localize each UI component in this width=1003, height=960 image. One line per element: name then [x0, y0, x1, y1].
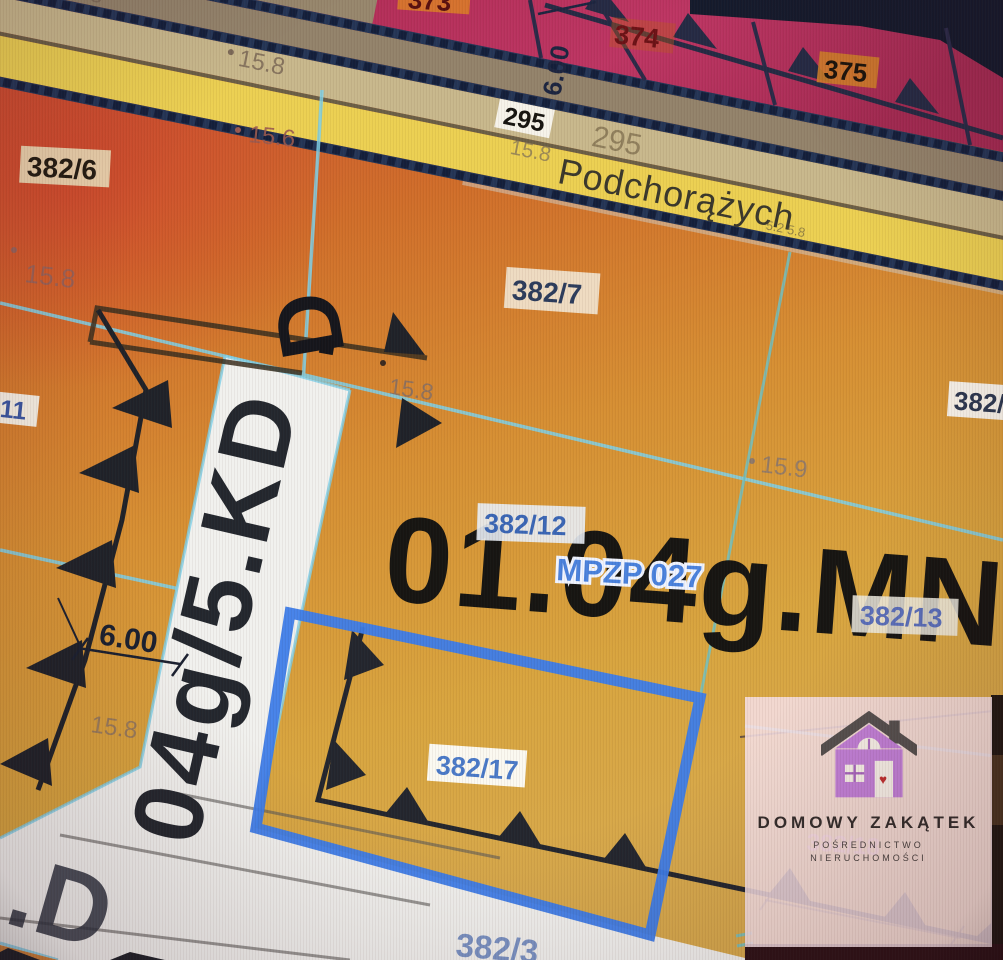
parcel-374-label: 374	[613, 19, 661, 54]
parcel-382-right-edge[interactable]: 382/	[947, 381, 1003, 420]
survey-square-marker	[319, 339, 335, 355]
parcel-374[interactable]: 374	[609, 17, 676, 56]
parcel-382-6-label: 382/6	[26, 151, 98, 186]
watermark-panel: ♥ DOMOWY ZAKĄTEK POŚREDNICTWO NIERUCHOMO…	[745, 697, 992, 947]
parcel-382-7[interactable]: 382/7	[504, 267, 601, 314]
parcel-382-17-label: 382/17	[435, 750, 519, 786]
parcel-382-12[interactable]: 382/12	[476, 503, 585, 544]
parcel-382-right-label: 382/	[953, 386, 1003, 419]
photo-edge-right	[991, 695, 1003, 960]
elevation-dot	[11, 247, 17, 253]
parcel-382-6[interactable]: 382/6	[19, 146, 111, 188]
survey-dot	[380, 360, 386, 366]
watermark-brand-name: DOMOWY ZAKĄTEK	[758, 813, 980, 833]
parcel-382-11-label: 11	[0, 395, 28, 426]
parcel-375-label: 375	[822, 54, 868, 88]
watermark-subtitle-2: NIERUCHOMOŚCI	[810, 853, 927, 863]
parcel-382-13-label: 382/13	[859, 600, 943, 633]
parcel-382-13[interactable]: 382/13	[851, 595, 958, 636]
svg-text:♥: ♥	[879, 772, 887, 787]
parcel-382-17[interactable]: 382/17	[427, 744, 527, 788]
watermark-subtitle-1: POŚREDNICTWO	[813, 840, 924, 850]
parcel-382-11[interactable]: 11	[0, 391, 40, 427]
house-logo-icon: ♥	[821, 711, 917, 803]
elevation-dot	[749, 458, 755, 464]
elevation-label: 15.8	[23, 258, 77, 294]
parcel-382-12-label: 382/12	[484, 508, 568, 541]
elevation-label: 15.6	[247, 121, 296, 153]
photo-edge-right-glare	[991, 755, 1003, 825]
parcel-373-label: 373	[407, 0, 452, 17]
elevation-label: 15.9	[759, 451, 809, 483]
screenshot-of-zoning-map: 15.8 15.8 295 295 15.8 Podchorążych 5.2 …	[0, 0, 1003, 960]
parcel-375[interactable]: 375	[816, 51, 879, 89]
elevation-dot	[235, 127, 241, 133]
parcel-382-7-label: 382/7	[511, 274, 583, 310]
